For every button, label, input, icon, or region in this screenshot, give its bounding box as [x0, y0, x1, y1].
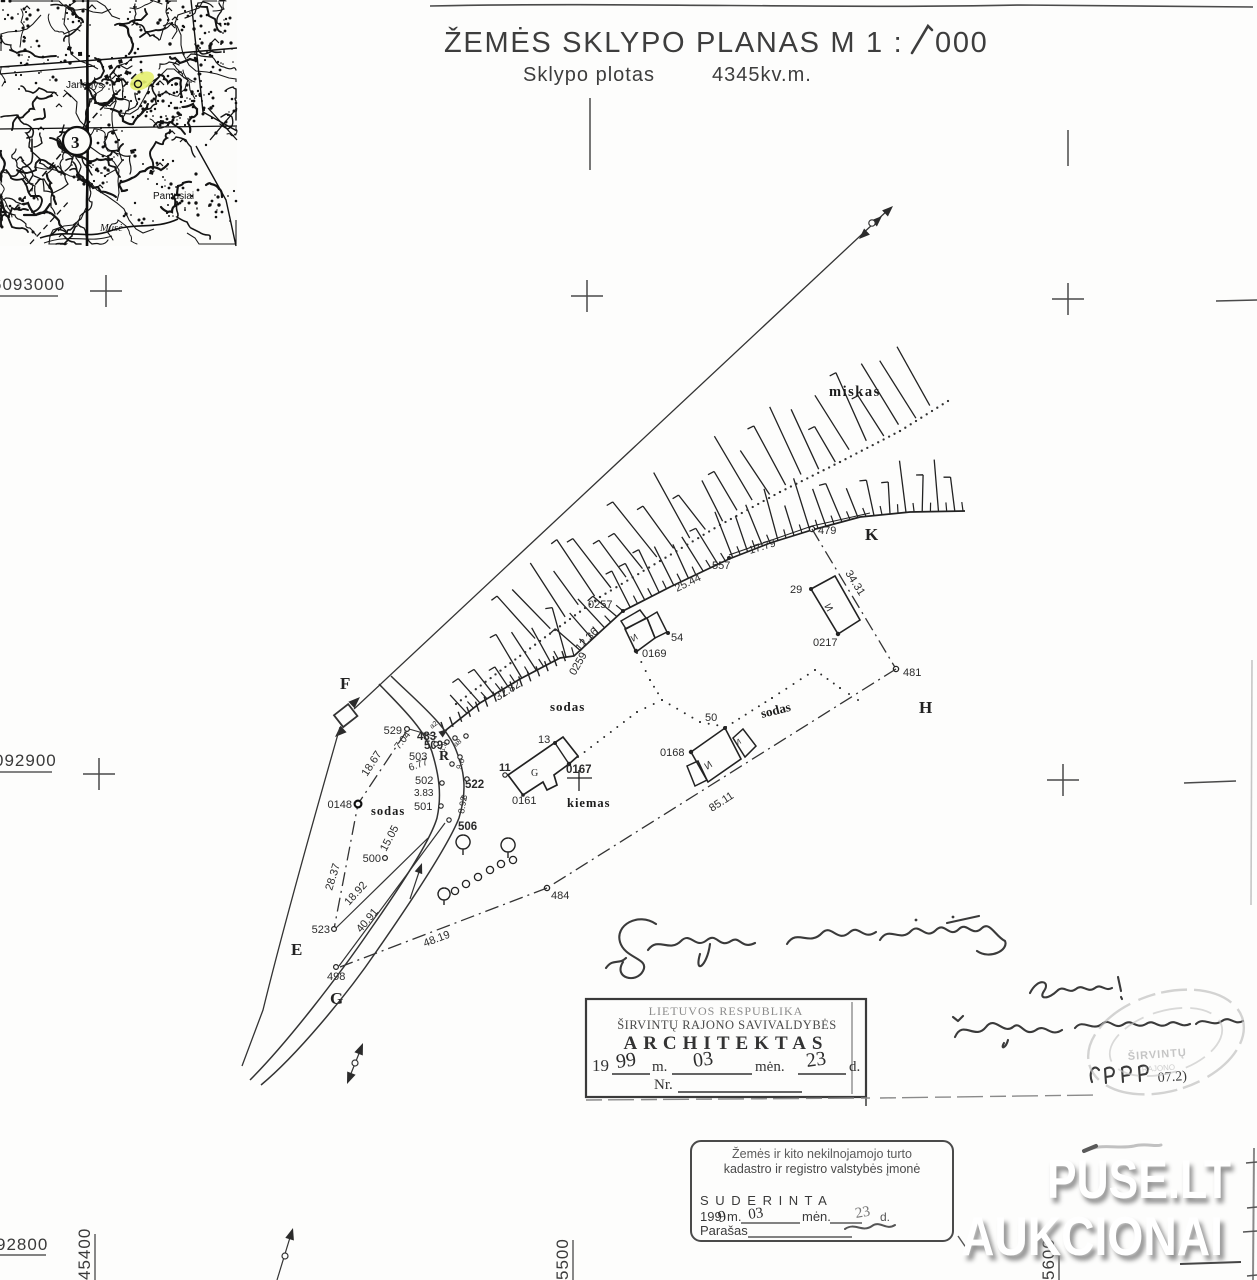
svg-text:529: 529: [384, 725, 402, 737]
svg-text:H: H: [919, 698, 932, 717]
svg-text:mėn.: mėn.: [802, 1209, 831, 1224]
svg-text:Žemės ir kito nekilnojamojo tu: Žemės ir kito nekilnojamojo turto: [732, 1146, 912, 1161]
svg-text:G: G: [531, 768, 538, 779]
svg-text:23: 23: [854, 1204, 872, 1222]
svg-text:F: F: [340, 674, 350, 693]
svg-text:506: 506: [458, 821, 477, 833]
svg-text:kiemas: kiemas: [567, 796, 611, 810]
svg-text:000: 000: [935, 27, 989, 59]
svg-text:0257: 0257: [588, 599, 612, 611]
svg-text:03: 03: [692, 1047, 715, 1072]
svg-text:0161: 0161: [512, 795, 536, 807]
svg-text:484: 484: [551, 890, 569, 902]
svg-text:d.: d.: [880, 1210, 890, 1224]
svg-text:3.83: 3.83: [414, 788, 434, 799]
svg-text:481: 481: [903, 667, 921, 679]
svg-text:0169: 0169: [642, 648, 666, 660]
svg-text:sodas: sodas: [371, 804, 405, 818]
svg-text:501: 501: [414, 801, 432, 813]
svg-text:Sklypo plotas: Sklypo plotas: [523, 64, 655, 86]
svg-text:S U D E R I N T A: S U D E R I N T A: [700, 1193, 828, 1208]
svg-text:92800: 92800: [0, 1235, 48, 1254]
svg-text:mėn.: mėn.: [755, 1059, 785, 1075]
svg-text:miskas: miskas: [829, 384, 881, 400]
svg-text:45400: 45400: [75, 1228, 94, 1280]
svg-text:4345kv.m.: 4345kv.m.: [712, 64, 812, 86]
svg-text:Parašas: Parašas: [700, 1223, 748, 1238]
svg-text:479: 479: [818, 525, 836, 537]
svg-text:23: 23: [805, 1047, 828, 1072]
svg-text:Pamusiai: Pamusiai: [153, 191, 194, 202]
svg-text:E: E: [291, 940, 302, 959]
svg-text:6093000: 6093000: [0, 275, 65, 294]
svg-text:d.: d.: [849, 1059, 860, 1075]
svg-text:523: 523: [312, 924, 330, 936]
svg-text:ŠIRVINTŲ RAJONO SAVIVALDYBĖS: ŠIRVINTŲ RAJONO SAVIVALDYBĖS: [617, 1018, 837, 1032]
svg-text:m.: m.: [727, 1209, 741, 1224]
svg-text:0148: 0148: [328, 799, 352, 811]
svg-text:sodas: sodas: [550, 699, 585, 714]
svg-text:502: 502: [415, 775, 433, 787]
svg-text:50: 50: [705, 712, 717, 724]
svg-text:092900: 092900: [0, 751, 57, 770]
svg-text:Musė: Musė: [99, 223, 123, 234]
svg-text:ARCHITEKTAS: ARCHITEKTAS: [623, 1033, 828, 1054]
svg-text:Nr.: Nr.: [654, 1077, 673, 1093]
svg-text:11: 11: [499, 762, 511, 774]
svg-text:557: 557: [712, 560, 730, 572]
svg-text:99: 99: [615, 1048, 638, 1073]
svg-text:13: 13: [538, 734, 550, 746]
svg-text:LIETUVOS RESPUBLIKA: LIETUVOS RESPUBLIKA: [649, 1004, 804, 1018]
svg-text:K: K: [865, 525, 879, 544]
svg-text:Janonys: Janonys: [66, 80, 103, 91]
svg-text:29: 29: [790, 584, 802, 596]
svg-text:54: 54: [671, 632, 683, 644]
svg-text:m.: m.: [652, 1059, 667, 1075]
svg-text:19: 19: [592, 1056, 609, 1075]
svg-text:kadastro ir registro valstybės: kadastro ir registro valstybės įmonė: [724, 1162, 921, 1176]
svg-text:03: 03: [747, 1205, 764, 1223]
svg-text:ŽEMĖS SKLYPO PLANAS M 1 :: ŽEMĖS SKLYPO PLANAS M 1 :: [444, 26, 903, 59]
svg-text:AUKCIONAI: AUKCIONAI: [961, 1205, 1223, 1267]
svg-text:0217: 0217: [813, 637, 837, 649]
svg-text:0168: 0168: [660, 747, 684, 759]
svg-text:3: 3: [71, 133, 80, 152]
svg-text:PUSE.LT: PUSE.LT: [1047, 1148, 1231, 1210]
svg-text:500: 500: [363, 853, 381, 865]
svg-text:5500: 5500: [553, 1238, 572, 1280]
